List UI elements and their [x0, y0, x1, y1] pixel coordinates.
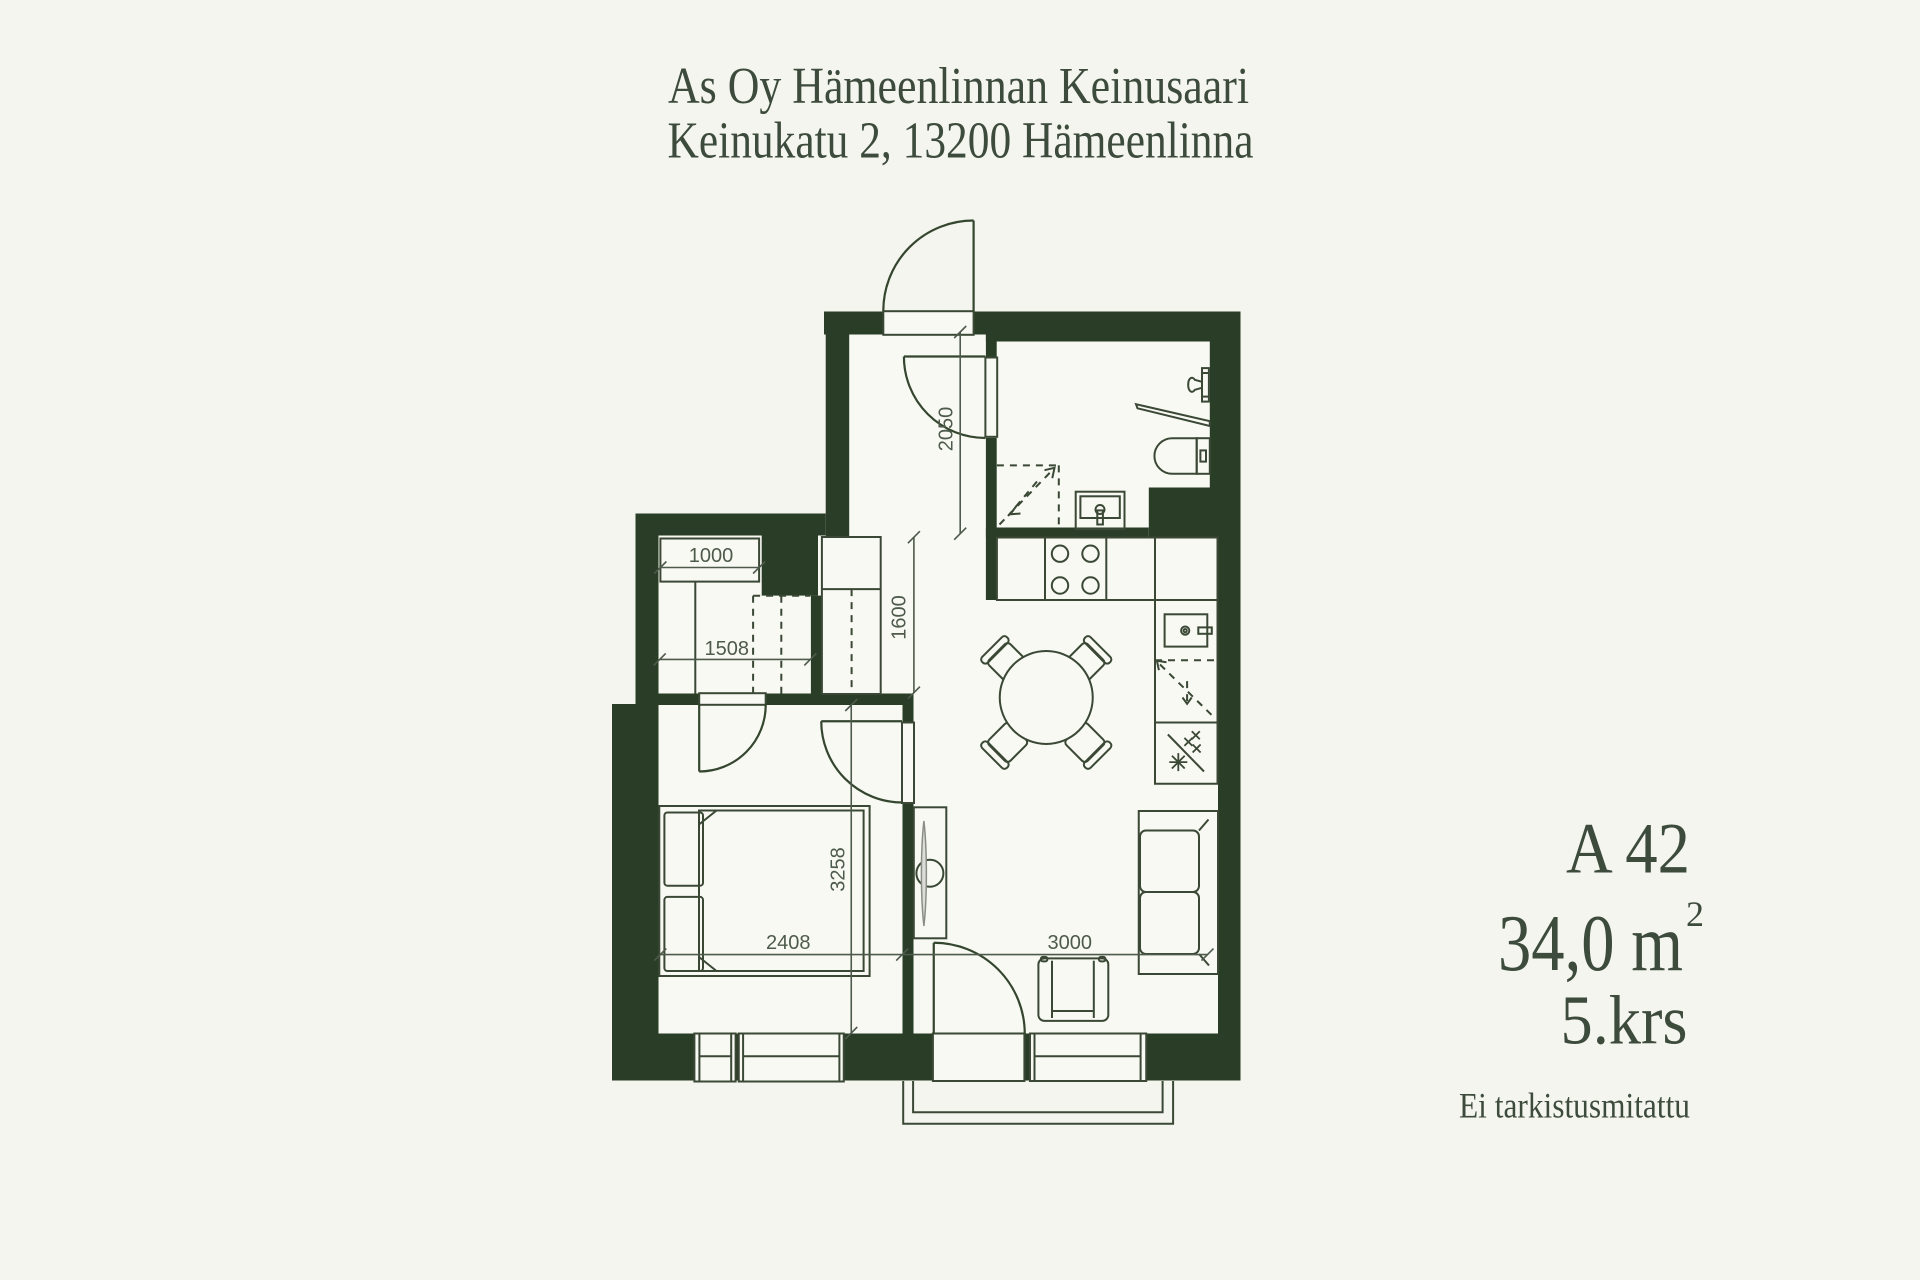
svg-text:Keinukatu 2, 13200 Hämeenlinna: Keinukatu 2, 13200 Hämeenlinna	[668, 113, 1254, 170]
svg-text:A 42: A 42	[1566, 809, 1690, 889]
svg-text:Ei tarkistusmitattu: Ei tarkistusmitattu	[1459, 1086, 1690, 1126]
svg-text:3258: 3258	[827, 847, 849, 892]
svg-text:3000: 3000	[1048, 932, 1093, 954]
svg-text:1508: 1508	[705, 638, 750, 660]
svg-text:5.krs: 5.krs	[1561, 983, 1688, 1060]
svg-text:2050: 2050	[935, 407, 957, 452]
svg-text:1000: 1000	[689, 545, 734, 567]
svg-text:1600: 1600	[888, 595, 910, 640]
svg-text:2: 2	[1686, 894, 1704, 934]
svg-text:As Oy Hämeenlinnan Keinusaari: As Oy Hämeenlinnan Keinusaari	[668, 58, 1249, 115]
svg-text:34,0 m: 34,0 m	[1498, 900, 1683, 988]
svg-text:2408: 2408	[766, 932, 811, 954]
